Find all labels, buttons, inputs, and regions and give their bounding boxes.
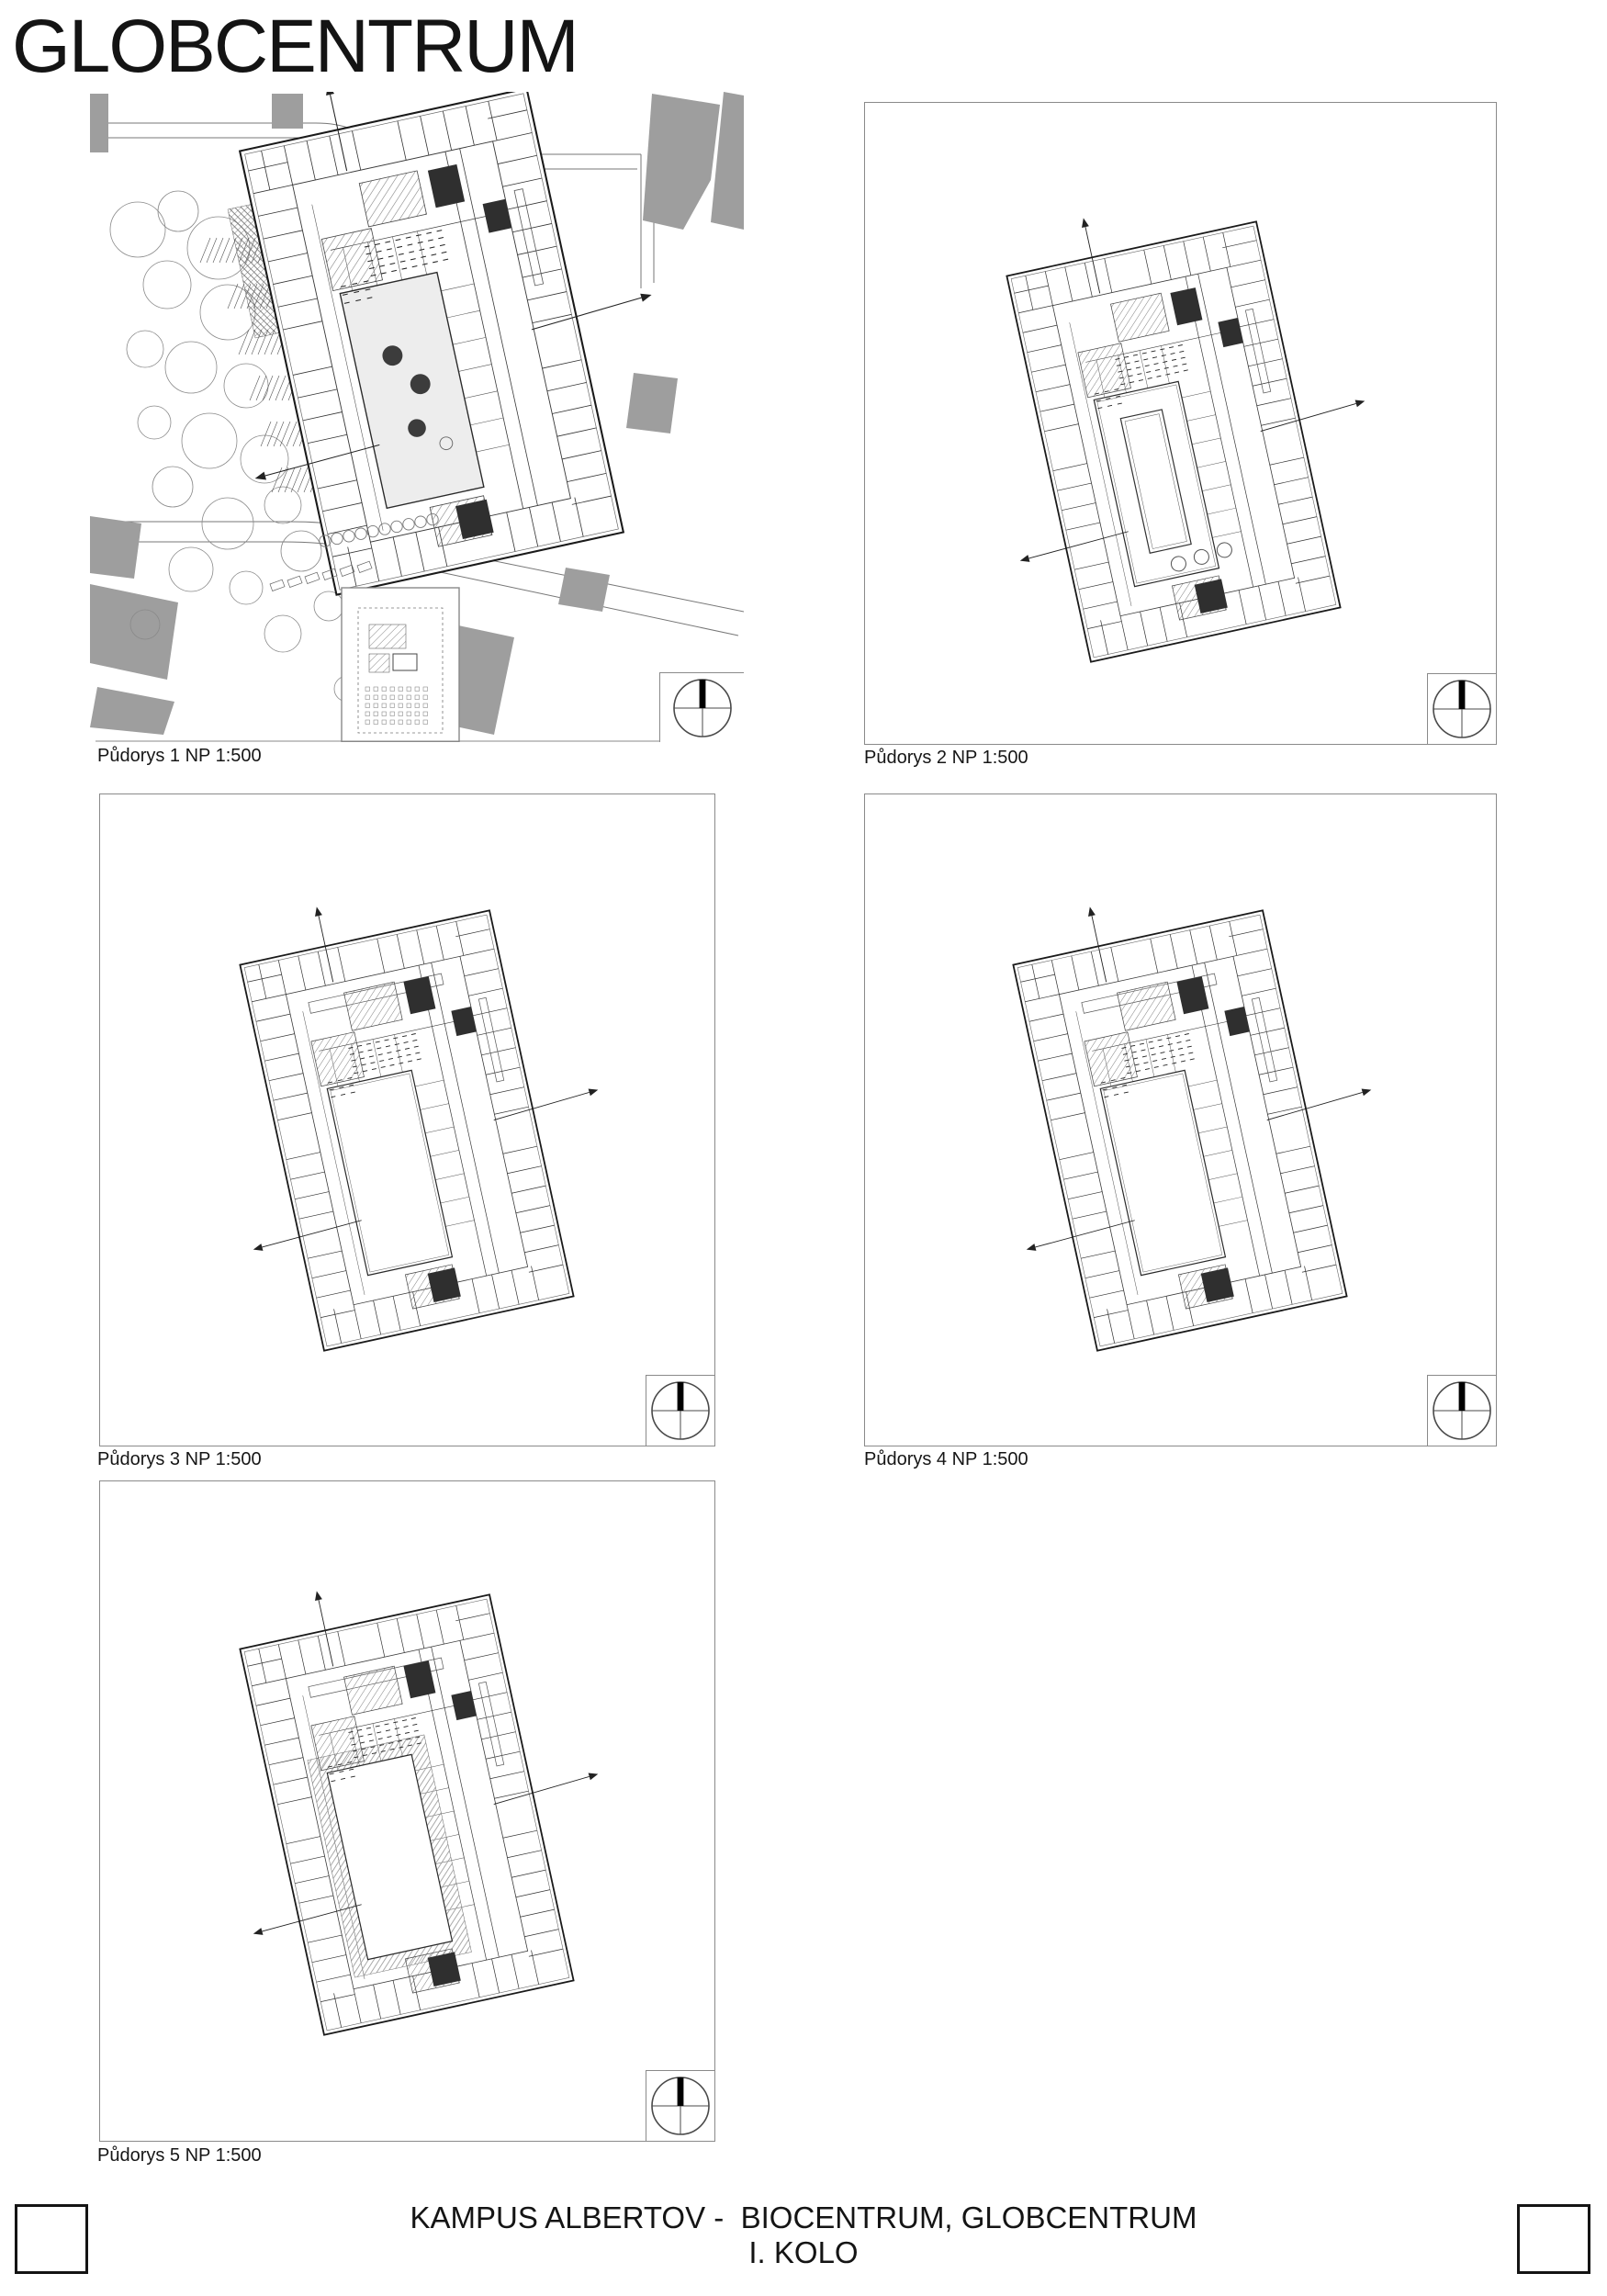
plan-label-5: Půdorys 5 NP 1:500: [97, 2145, 262, 2167]
north-arrow-box: [659, 672, 744, 742]
north-compass-icon: [649, 2075, 712, 2137]
floor-plan-drawing-3: [100, 794, 713, 1444]
north-compass-icon: [1431, 678, 1493, 740]
plan-label-2: Půdorys 2 NP 1:500: [864, 748, 1028, 769]
sheet-title: GLOBCENTRUM: [12, 4, 578, 90]
floor-plan-drawing-5: [100, 1481, 713, 2139]
footer-left-box: [15, 2204, 88, 2274]
footer-round-label: I. KOLO: [0, 2235, 1607, 2270]
plan-panel-3np: [99, 793, 715, 1446]
plan-label-4: Půdorys 4 NP 1:500: [864, 1449, 1028, 1470]
north-arrow-box: [646, 2070, 714, 2141]
plan-panel-5np: [99, 1480, 715, 2142]
plan-panel-site: [90, 92, 744, 742]
floor-plan-drawing-4: [865, 794, 1494, 1444]
north-arrow-box: [1427, 1375, 1496, 1446]
north-compass-icon: [1431, 1379, 1493, 1442]
plan-label-1: Půdorys 1 NP 1:500: [97, 746, 262, 767]
footer-right-box: [1517, 2204, 1590, 2274]
north-compass-icon: [649, 1379, 712, 1442]
north-arrow-box: [646, 1375, 714, 1446]
plan-panel-2np: [864, 102, 1497, 745]
site-plan-drawing: [90, 92, 744, 742]
drawing-sheet: GLOBCENTRUM Půdorys 1 NP 1:500 Půdorys 2…: [0, 0, 1607, 2296]
footer-project-title: KAMPUS ALBERTOV - BIOCENTRUM, GLOBCENTRU…: [0, 2200, 1607, 2235]
north-compass-icon: [671, 677, 734, 739]
plan-label-3: Půdorys 3 NP 1:500: [97, 1449, 262, 1470]
plan-panel-4np: [864, 793, 1497, 1446]
floor-plan-drawing-2: [865, 103, 1494, 742]
north-arrow-box: [1427, 673, 1496, 744]
